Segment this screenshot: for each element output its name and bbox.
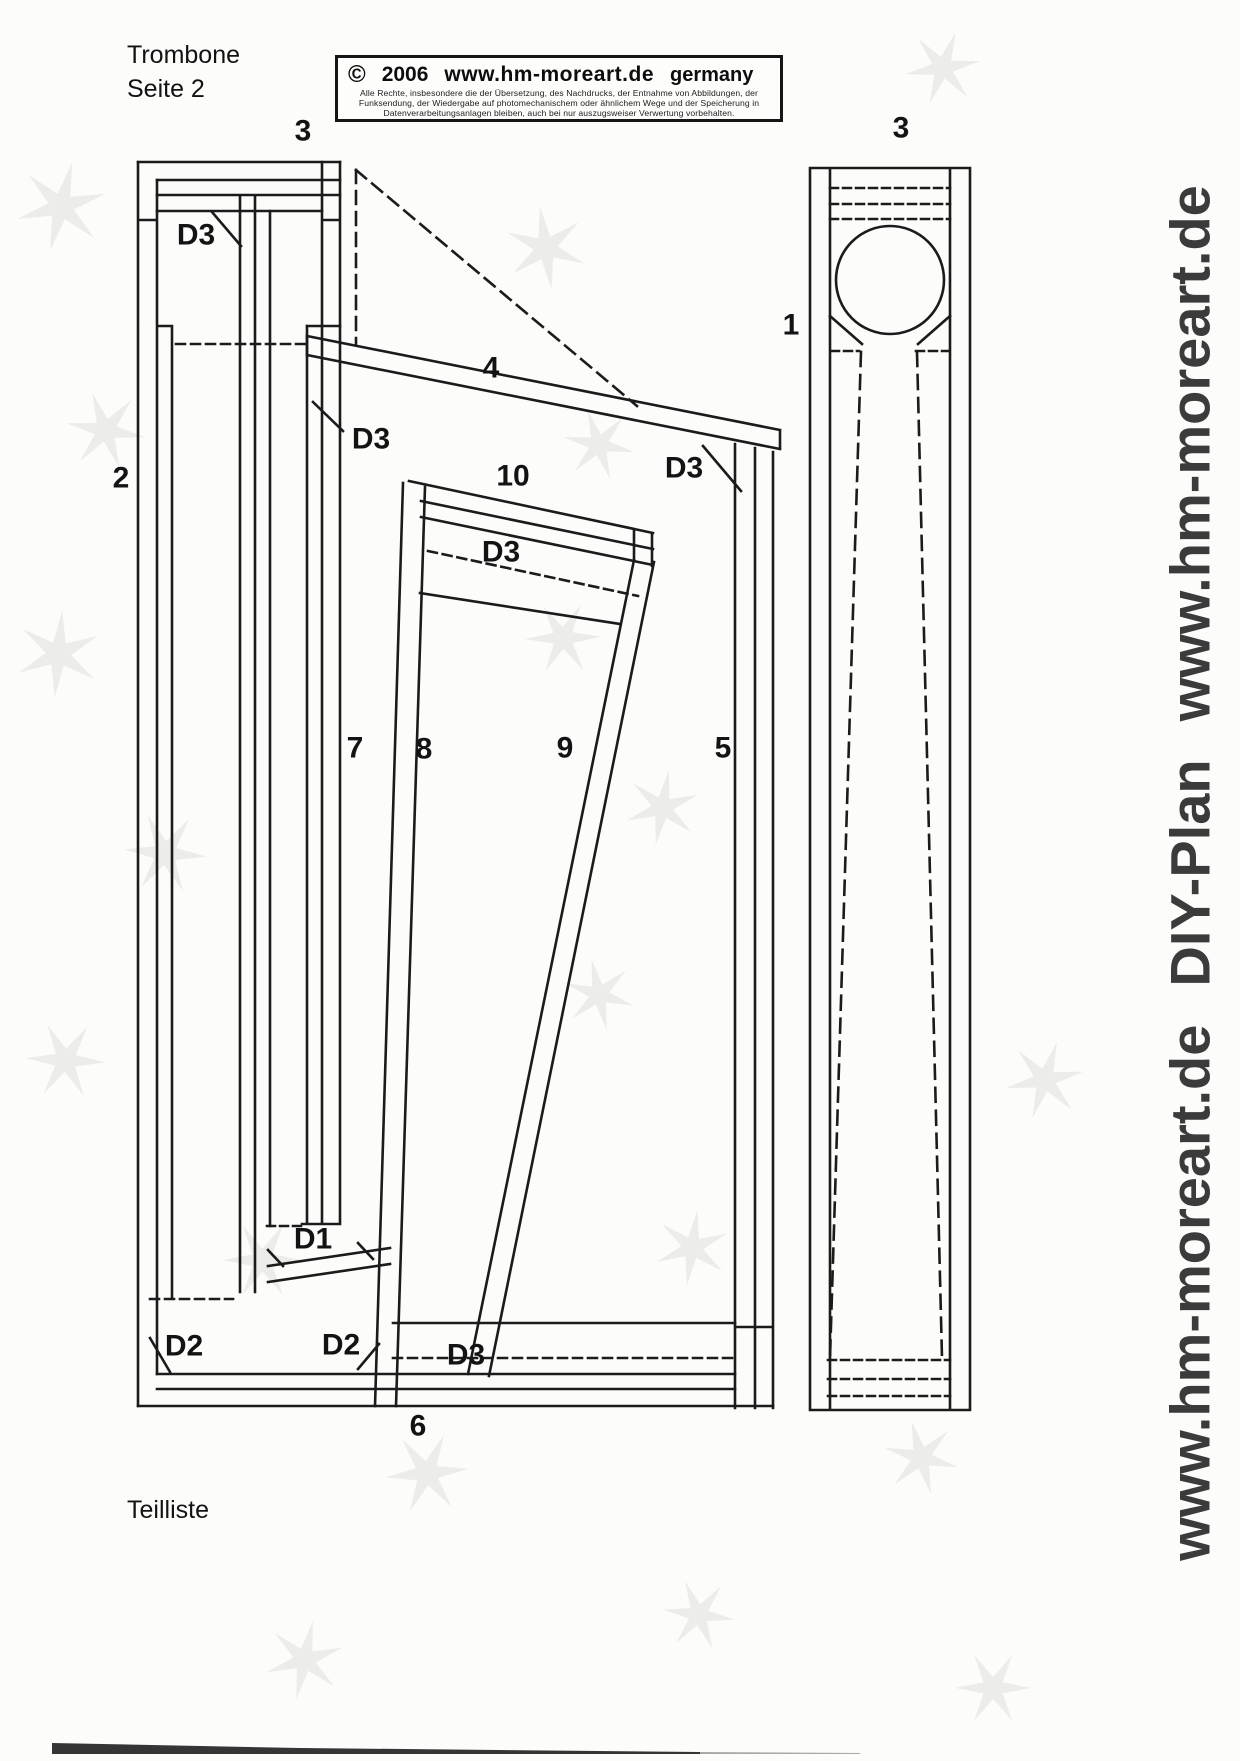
scanned-plan-page: { "page": { "title_line1": "Trombone", "… [0,0,1240,1754]
scan-bottom-edge [0,0,1240,1754]
